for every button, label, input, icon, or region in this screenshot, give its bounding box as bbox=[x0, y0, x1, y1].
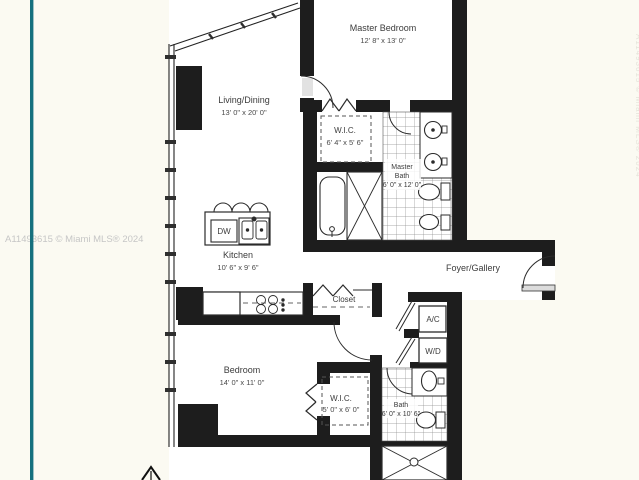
wall-segment bbox=[447, 292, 462, 480]
wall-segment bbox=[372, 283, 382, 317]
master-tub-shower bbox=[320, 172, 382, 240]
wall-segment bbox=[404, 329, 419, 338]
structural-column bbox=[176, 66, 202, 130]
cooktop-knob-icon bbox=[282, 309, 284, 311]
toilet-tank-icon bbox=[441, 215, 450, 230]
cooktop-knob-icon bbox=[282, 304, 284, 306]
cooktop-burner-icon bbox=[269, 305, 278, 314]
wall-segment bbox=[303, 162, 383, 172]
faucet-icon bbox=[442, 126, 447, 133]
bedroom-dims: 14' 0" x 11' 0" bbox=[220, 378, 265, 387]
dishwasher-label: DW bbox=[217, 227, 231, 236]
wall-segment bbox=[542, 291, 555, 300]
ac-label: A/C bbox=[426, 315, 440, 324]
sink-icon bbox=[422, 371, 437, 391]
master-bedroom-dims: 12' 8" x 13' 0" bbox=[360, 36, 406, 45]
entry-door-leaf bbox=[522, 285, 555, 291]
wall-segment bbox=[452, 0, 467, 252]
bedroom-wic-dims: 5' 0" x 6' 0" bbox=[323, 405, 360, 414]
wall-segment bbox=[542, 252, 555, 266]
foyer-label: Foyer/Gallery bbox=[446, 263, 501, 273]
wall-segment bbox=[410, 100, 452, 112]
living-dining-dims: 13' 0" x 20' 0" bbox=[221, 108, 267, 117]
tub-faucet-icon bbox=[330, 227, 335, 232]
bath-dims: 6' 0" x 10' 6" bbox=[382, 411, 421, 418]
living-dining-label: Living/Dining bbox=[218, 95, 270, 105]
wall-segment bbox=[382, 441, 447, 446]
wall-segment bbox=[356, 100, 390, 112]
sink-drain-icon bbox=[260, 229, 262, 231]
sink-drain-icon bbox=[246, 229, 248, 231]
refrigerator-icon bbox=[203, 292, 240, 315]
structural-column bbox=[176, 287, 203, 320]
sink-drain-icon bbox=[431, 128, 435, 132]
wall-segment bbox=[303, 283, 313, 315]
master-bath-label: Master bbox=[391, 164, 413, 171]
second-bath: Bath 6' 0" x 10' 6" bbox=[382, 368, 447, 480]
floorplan-page: A11493615 © Miami MLS® 2024 bbox=[0, 0, 639, 480]
sink-drain-icon bbox=[431, 160, 435, 164]
wd-label: W/D bbox=[425, 347, 441, 356]
wall-segment bbox=[317, 373, 330, 384]
kitchen-label: Kitchen bbox=[223, 250, 253, 260]
door-sill bbox=[302, 78, 313, 96]
master-bath-dims: 6' 0" x 12' 0" bbox=[383, 182, 422, 189]
bedroom-label: Bedroom bbox=[224, 365, 261, 375]
toilet-tank-icon bbox=[441, 183, 450, 200]
cooktop-knob-icon bbox=[282, 299, 284, 301]
faucet-icon bbox=[442, 158, 447, 165]
shower-drain-icon bbox=[410, 458, 418, 466]
wall-segment bbox=[303, 240, 555, 252]
wall-segment bbox=[300, 0, 314, 76]
master-wic-label: W.I.C. bbox=[334, 126, 356, 135]
closet-label: Closet bbox=[333, 295, 356, 304]
cooktop-burner-icon bbox=[257, 305, 266, 314]
wall-segment bbox=[317, 362, 372, 373]
toilet-tank-icon bbox=[436, 412, 445, 428]
kitchen-dims: 10' 6" x 9' 6" bbox=[217, 263, 258, 272]
floorplan-drawing: A11493615 © Miami MLS® 2024 bbox=[0, 0, 639, 480]
master-bedroom-label: Master Bedroom bbox=[350, 23, 417, 33]
bedroom-wic-label: W.I.C. bbox=[330, 394, 352, 403]
master-bath: Master Bath 6' 0" x 12' 0" bbox=[383, 112, 452, 240]
toilet-icon bbox=[419, 184, 440, 200]
master-wic-dims: 6' 4" x 5' 6" bbox=[327, 138, 364, 147]
bidet-icon bbox=[420, 215, 439, 230]
wall-segment bbox=[303, 100, 317, 252]
wall-segment bbox=[370, 355, 382, 480]
bath-label: Bath bbox=[394, 402, 409, 409]
watermark-left: A11493615 © Miami MLS® 2024 bbox=[5, 234, 143, 245]
faucet-icon bbox=[438, 378, 444, 384]
watermark-right: A11493615 © Miami MLS® 2024 bbox=[634, 34, 639, 178]
master-bath-label: Bath bbox=[395, 173, 410, 180]
sink-faucet-icon bbox=[252, 217, 256, 221]
structural-column bbox=[178, 404, 218, 447]
teal-accent-line bbox=[30, 0, 33, 480]
